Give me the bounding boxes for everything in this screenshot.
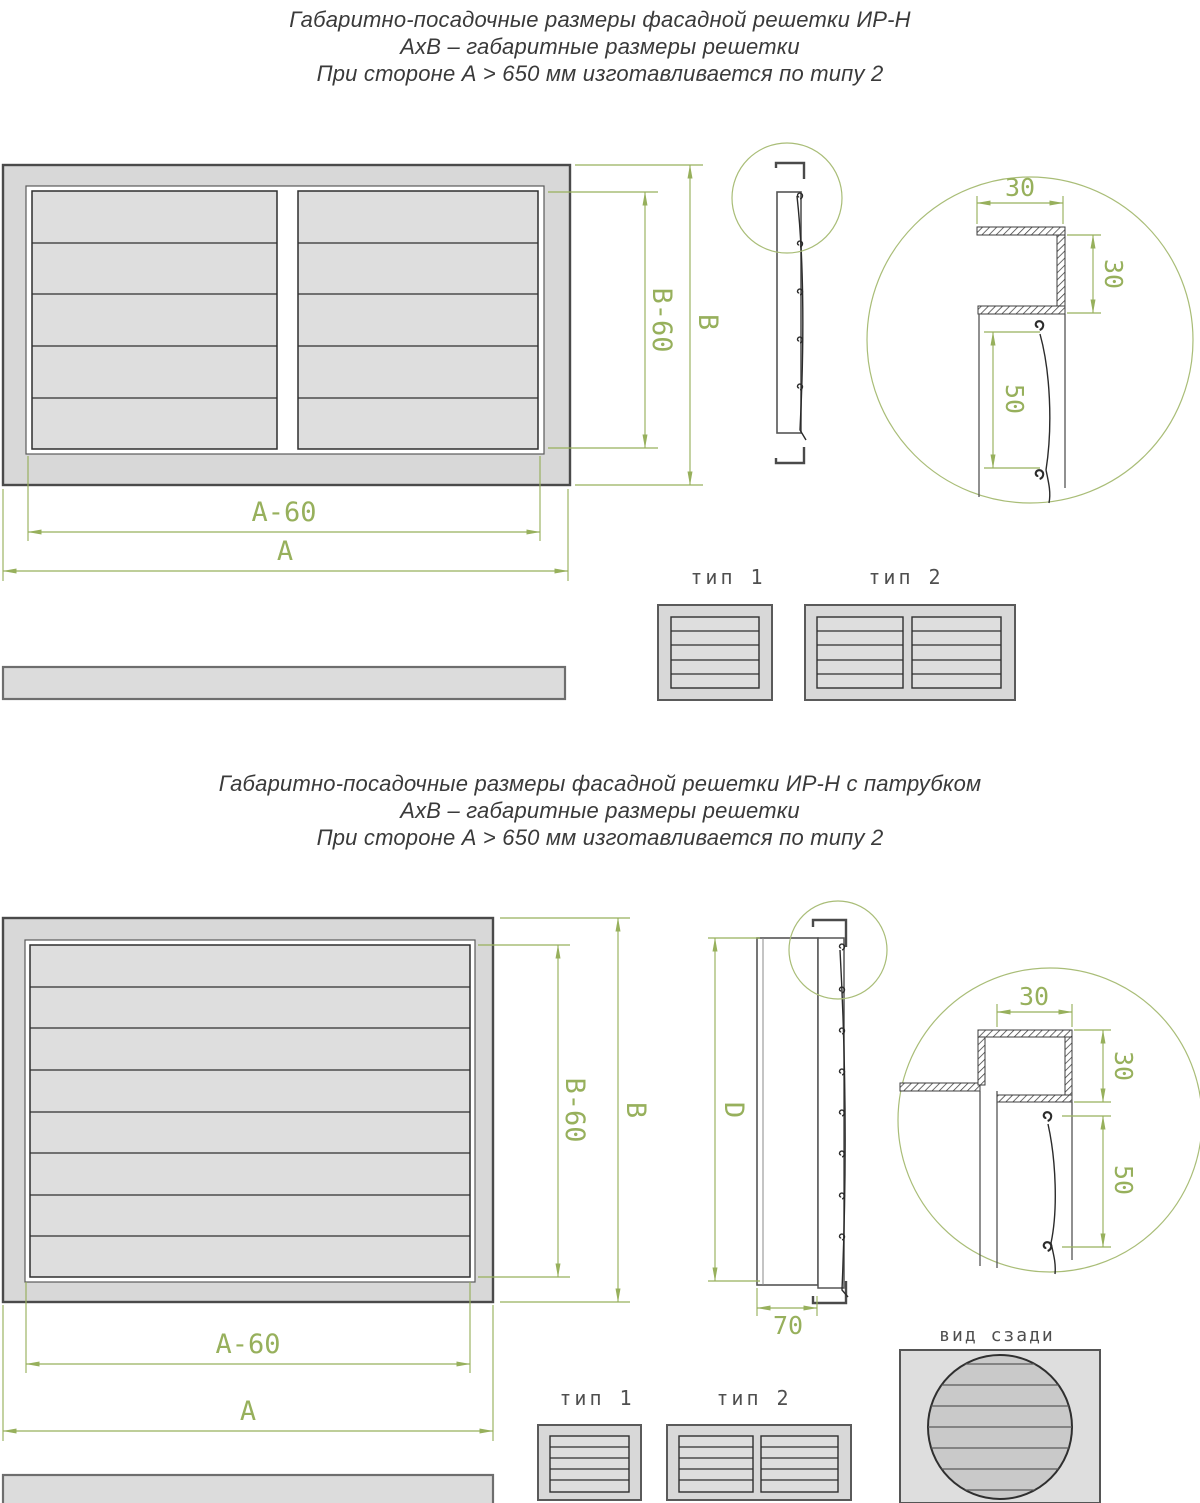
bottom-types: тип 1 тип 2 [538, 1386, 851, 1500]
bottom-side-view: D 70 [708, 901, 887, 1340]
bottom-type2-label: тип 2 [716, 1386, 791, 1410]
top-type2-label: тип 2 [868, 565, 943, 589]
dim-50-detail1: 50 [1000, 384, 1029, 414]
top-type1-grille [658, 605, 772, 700]
dim-30-top-detail2: 30 [1019, 982, 1049, 1011]
dim-a60-bottom: A-60 [215, 1329, 280, 1360]
dim-d: D [718, 1102, 749, 1118]
top-type1-label: тип 1 [690, 565, 765, 589]
dim-70: 70 [773, 1311, 803, 1340]
bottom-type1-label: тип 1 [559, 1386, 634, 1410]
dim-a-top: A [277, 536, 293, 567]
dim-b-bottom: B [620, 1102, 651, 1118]
technical-drawing: B-60 B A-60 A [0, 0, 1200, 1503]
top-side-view [732, 143, 842, 463]
dim-a60-top: A-60 [251, 497, 316, 528]
top-profile-bar [3, 667, 565, 699]
top-front-slats-left [32, 191, 277, 449]
dim-b60-bottom: B-60 [559, 1077, 590, 1142]
dim-b-top: B [692, 314, 723, 330]
drawing-page: Габаритно-посадочные размеры фасадной ре… [0, 0, 1200, 1503]
bottom-type1-grille [538, 1425, 641, 1500]
bottom-front-view [3, 918, 493, 1302]
top-front-view [3, 165, 570, 485]
dim-a-bottom: A [240, 1396, 256, 1427]
dim-30-top-detail1: 30 [1005, 173, 1035, 202]
top-type2-grille [805, 605, 1015, 700]
dim-30-right-detail1: 30 [1099, 259, 1128, 289]
bottom-detail-view: 30 30 50 [898, 968, 1200, 1274]
dim-50-detail2: 50 [1109, 1165, 1138, 1195]
bottom-front-slats [30, 945, 470, 1277]
bottom-profile-bar [3, 1475, 493, 1503]
rear-view-label: вид сзади [939, 1325, 1055, 1346]
bottom-type2-grille [667, 1425, 851, 1500]
top-front-slats-right [298, 191, 538, 449]
dim-30-right-detail2: 30 [1109, 1051, 1138, 1081]
dim-b60-top: B-60 [646, 287, 677, 352]
top-types: тип 1 тип 2 [658, 565, 1015, 700]
rear-view: вид сзади [900, 1325, 1100, 1503]
top-detail-view: 30 30 50 [867, 173, 1193, 503]
